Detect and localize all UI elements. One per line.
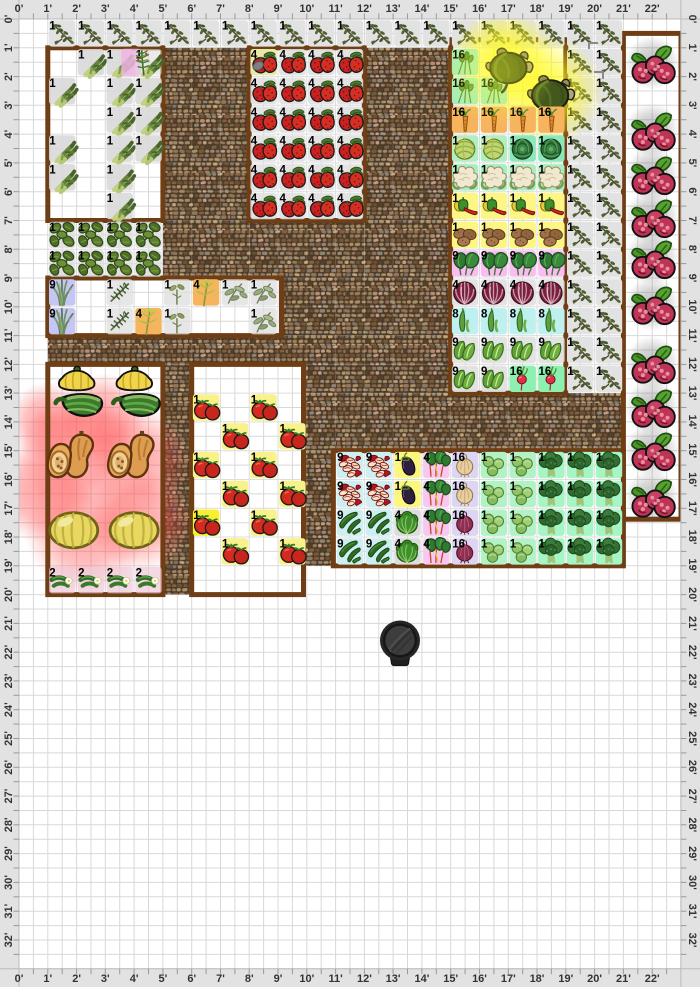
svg-text:4: 4: [337, 78, 344, 90]
svg-text:4: 4: [452, 280, 459, 292]
svg-text:22': 22': [686, 645, 698, 660]
svg-text:1: 1: [510, 222, 517, 234]
svg-text:1: 1: [567, 481, 574, 493]
svg-text:1: 1: [251, 308, 258, 320]
svg-text:1: 1: [452, 164, 459, 176]
svg-text:6': 6': [3, 187, 15, 196]
svg-text:1: 1: [107, 280, 114, 292]
svg-text:1: 1: [510, 539, 517, 551]
svg-text:4: 4: [280, 164, 287, 176]
svg-text:8: 8: [539, 308, 546, 320]
svg-text:1: 1: [337, 21, 344, 33]
svg-text:9: 9: [481, 337, 487, 349]
svg-text:1: 1: [251, 21, 258, 33]
svg-text:1: 1: [251, 280, 258, 292]
svg-text:21': 21': [3, 616, 15, 631]
svg-text:9: 9: [452, 251, 458, 263]
svg-text:17': 17': [501, 973, 516, 985]
svg-text:7': 7': [3, 216, 15, 225]
svg-text:1: 1: [193, 452, 200, 464]
svg-text:1: 1: [395, 452, 402, 464]
svg-text:1: 1: [481, 222, 488, 234]
svg-text:1: 1: [280, 423, 287, 435]
svg-text:18': 18': [530, 3, 545, 15]
svg-text:1: 1: [136, 222, 143, 234]
svg-text:9: 9: [366, 452, 372, 464]
svg-text:18': 18': [3, 529, 15, 544]
svg-text:1: 1: [596, 366, 603, 378]
svg-text:10': 10': [3, 299, 15, 314]
svg-text:4: 4: [308, 164, 315, 176]
svg-text:7': 7': [216, 3, 225, 15]
svg-text:9: 9: [337, 510, 343, 522]
svg-text:1: 1: [539, 193, 546, 205]
svg-text:12': 12': [3, 357, 15, 372]
svg-text:1: 1: [596, 164, 603, 176]
svg-text:1: 1: [395, 21, 402, 33]
svg-text:1: 1: [567, 452, 574, 464]
svg-text:1: 1: [481, 539, 488, 551]
svg-text:16': 16': [686, 472, 698, 487]
svg-text:2': 2': [686, 72, 698, 81]
svg-text:9: 9: [510, 337, 516, 349]
svg-text:9: 9: [337, 539, 343, 551]
svg-text:1: 1: [567, 539, 574, 551]
svg-text:28': 28': [3, 817, 15, 832]
svg-text:4: 4: [251, 136, 258, 148]
svg-text:4: 4: [280, 193, 287, 205]
svg-text:6': 6': [187, 973, 196, 985]
svg-text:23': 23': [686, 673, 698, 688]
svg-text:22': 22': [3, 644, 15, 659]
svg-text:9: 9: [510, 251, 516, 263]
svg-text:21': 21': [616, 973, 631, 985]
svg-text:1: 1: [481, 164, 488, 176]
svg-text:16: 16: [539, 107, 552, 119]
svg-text:4: 4: [395, 510, 402, 522]
svg-text:16: 16: [539, 366, 552, 378]
svg-text:1: 1: [539, 164, 546, 176]
svg-text:4: 4: [337, 193, 344, 205]
svg-text:1: 1: [567, 21, 574, 33]
svg-text:1: 1: [567, 308, 574, 320]
svg-text:5': 5': [159, 3, 168, 15]
svg-text:20': 20': [587, 3, 602, 15]
svg-text:14': 14': [414, 3, 429, 15]
svg-text:1: 1: [452, 222, 459, 234]
svg-text:1: 1: [107, 164, 114, 176]
svg-text:8': 8': [245, 973, 254, 985]
svg-text:1: 1: [596, 510, 603, 522]
svg-text:10': 10': [299, 973, 314, 985]
svg-text:4: 4: [539, 280, 546, 292]
svg-text:0': 0': [3, 14, 15, 23]
svg-text:1: 1: [366, 21, 373, 33]
svg-text:9: 9: [481, 366, 487, 378]
svg-text:1: 1: [481, 193, 488, 205]
svg-text:14': 14': [686, 414, 698, 429]
svg-text:3': 3': [101, 3, 110, 15]
svg-text:29': 29': [3, 846, 15, 861]
svg-text:1: 1: [107, 107, 114, 119]
svg-text:4: 4: [337, 107, 344, 119]
svg-text:9: 9: [539, 337, 545, 349]
svg-text:4: 4: [251, 193, 258, 205]
svg-text:4: 4: [423, 510, 430, 522]
svg-text:1': 1': [43, 3, 52, 15]
svg-text:16: 16: [452, 452, 465, 464]
svg-text:1: 1: [280, 481, 287, 493]
svg-text:1: 1: [481, 510, 488, 522]
svg-text:1: 1: [395, 481, 402, 493]
svg-text:1: 1: [136, 78, 143, 90]
svg-text:4: 4: [280, 49, 287, 61]
svg-text:27': 27': [686, 789, 698, 804]
svg-text:9': 9': [3, 273, 15, 282]
svg-text:16': 16': [472, 973, 487, 985]
svg-text:4: 4: [251, 78, 258, 90]
svg-text:1: 1: [510, 136, 517, 148]
svg-text:1: 1: [251, 395, 258, 407]
svg-text:0': 0': [15, 973, 24, 985]
svg-text:14': 14': [414, 973, 429, 985]
svg-text:15': 15': [443, 973, 458, 985]
svg-text:17': 17': [3, 500, 15, 515]
svg-text:1: 1: [136, 107, 143, 119]
svg-text:9: 9: [337, 452, 343, 464]
svg-text:4: 4: [308, 49, 315, 61]
svg-text:9: 9: [366, 510, 372, 522]
svg-text:1: 1: [452, 136, 459, 148]
svg-text:1: 1: [596, 337, 603, 349]
svg-text:11': 11': [328, 3, 343, 15]
svg-text:1: 1: [596, 193, 603, 205]
svg-text:1: 1: [193, 395, 200, 407]
svg-text:4: 4: [308, 136, 315, 148]
svg-text:29': 29': [686, 846, 698, 861]
svg-text:10': 10': [299, 3, 314, 15]
svg-text:13': 13': [686, 386, 698, 401]
svg-text:20': 20': [686, 587, 698, 602]
svg-text:32': 32': [686, 933, 698, 948]
svg-text:4: 4: [337, 136, 344, 148]
svg-text:1: 1: [567, 193, 574, 205]
svg-text:1: 1: [107, 193, 114, 205]
svg-text:4: 4: [308, 107, 315, 119]
svg-text:12': 12': [357, 973, 372, 985]
svg-text:12': 12': [686, 357, 698, 372]
svg-text:1: 1: [567, 222, 574, 234]
svg-text:23': 23': [3, 673, 15, 688]
svg-text:0': 0': [686, 15, 698, 24]
svg-text:1: 1: [251, 452, 258, 464]
svg-text:9: 9: [49, 308, 55, 320]
svg-text:1: 1: [136, 136, 143, 148]
svg-text:1: 1: [49, 164, 56, 176]
svg-text:1: 1: [222, 280, 229, 292]
svg-text:1: 1: [280, 21, 287, 33]
svg-text:19': 19': [558, 3, 573, 15]
svg-text:1: 1: [78, 21, 85, 33]
svg-text:8: 8: [510, 308, 517, 320]
svg-text:1: 1: [510, 164, 517, 176]
svg-text:16: 16: [452, 481, 465, 493]
svg-text:9: 9: [452, 337, 458, 349]
svg-text:1: 1: [193, 510, 200, 522]
svg-text:15': 15': [686, 443, 698, 458]
svg-text:16: 16: [452, 539, 465, 551]
svg-text:1: 1: [567, 280, 574, 292]
svg-text:1: 1: [596, 539, 603, 551]
svg-text:1: 1: [596, 280, 603, 292]
svg-text:1: 1: [510, 481, 517, 493]
svg-text:18': 18': [530, 973, 545, 985]
svg-text:8': 8': [3, 244, 15, 253]
svg-text:25': 25': [3, 731, 15, 746]
svg-text:2': 2': [72, 3, 81, 15]
svg-text:1: 1: [222, 21, 229, 33]
svg-text:25': 25': [686, 731, 698, 746]
svg-text:4': 4': [130, 973, 139, 985]
svg-text:11': 11': [686, 328, 698, 343]
svg-text:4': 4': [130, 3, 139, 15]
svg-text:2': 2': [3, 72, 15, 81]
svg-text:4': 4': [686, 130, 698, 139]
svg-text:1: 1: [539, 510, 546, 522]
svg-text:4: 4: [280, 78, 287, 90]
svg-text:1: 1: [596, 452, 603, 464]
svg-text:1: 1: [567, 251, 574, 263]
svg-text:4: 4: [251, 164, 258, 176]
svg-text:24': 24': [686, 702, 698, 717]
svg-text:9: 9: [366, 539, 372, 551]
svg-text:2: 2: [136, 567, 142, 579]
svg-text:8: 8: [452, 308, 459, 320]
svg-text:1: 1: [567, 337, 574, 349]
svg-text:1: 1: [510, 193, 517, 205]
svg-text:13': 13': [3, 385, 15, 400]
svg-text:1: 1: [107, 78, 114, 90]
svg-text:1: 1: [136, 21, 143, 33]
svg-text:1: 1: [251, 510, 258, 522]
svg-text:1: 1: [222, 423, 229, 435]
svg-text:1: 1: [49, 222, 56, 234]
svg-text:1: 1: [539, 452, 546, 464]
svg-text:26': 26': [3, 759, 15, 774]
svg-text:1: 1: [49, 21, 56, 33]
svg-text:30': 30': [3, 875, 15, 890]
svg-text:1: 1: [596, 49, 603, 61]
svg-text:6': 6': [187, 3, 196, 15]
svg-text:4: 4: [481, 280, 488, 292]
svg-text:24': 24': [3, 702, 15, 717]
svg-text:1: 1: [49, 78, 56, 90]
svg-text:20': 20': [3, 587, 15, 602]
svg-text:4: 4: [423, 481, 430, 493]
svg-text:15': 15': [3, 443, 15, 458]
svg-text:2: 2: [107, 567, 113, 579]
svg-text:1: 1: [78, 222, 85, 234]
svg-text:16: 16: [510, 366, 523, 378]
svg-text:1: 1: [222, 481, 229, 493]
svg-text:19': 19': [3, 558, 15, 573]
svg-text:1: 1: [49, 251, 56, 263]
svg-text:1: 1: [481, 136, 488, 148]
svg-text:1: 1: [452, 193, 459, 205]
svg-text:4: 4: [395, 539, 402, 551]
svg-text:13': 13': [386, 3, 401, 15]
svg-text:8': 8': [686, 245, 698, 254]
svg-text:2: 2: [49, 567, 55, 579]
svg-text:6': 6': [686, 187, 698, 196]
svg-text:27': 27': [3, 788, 15, 803]
svg-text:21': 21': [686, 616, 698, 631]
svg-text:0': 0': [15, 3, 24, 15]
svg-text:1: 1: [78, 251, 85, 263]
svg-text:13': 13': [386, 973, 401, 985]
svg-text:9: 9: [452, 366, 458, 378]
svg-text:1: 1: [452, 21, 459, 33]
svg-text:9: 9: [337, 481, 343, 493]
svg-text:19': 19': [558, 973, 573, 985]
svg-text:1: 1: [539, 222, 546, 234]
svg-text:17': 17': [686, 501, 698, 516]
svg-text:26': 26': [686, 760, 698, 775]
svg-text:1: 1: [136, 251, 143, 263]
svg-text:1: 1: [222, 539, 229, 551]
svg-text:1: 1: [567, 164, 574, 176]
svg-text:21': 21': [616, 3, 631, 15]
svg-text:4: 4: [337, 164, 344, 176]
svg-text:11': 11': [3, 328, 15, 343]
svg-text:4: 4: [337, 49, 344, 61]
svg-text:9': 9': [274, 973, 283, 985]
svg-text:4: 4: [510, 280, 517, 292]
svg-text:3': 3': [3, 101, 15, 110]
svg-text:1: 1: [510, 452, 517, 464]
svg-text:1: 1: [78, 49, 85, 61]
svg-text:4: 4: [280, 136, 287, 148]
svg-text:2': 2': [72, 973, 81, 985]
svg-text:1: 1: [539, 539, 546, 551]
svg-text:1: 1: [107, 251, 114, 263]
svg-text:1: 1: [596, 136, 603, 148]
svg-text:31': 31': [686, 904, 698, 919]
svg-text:16': 16': [472, 3, 487, 15]
svg-text:1: 1: [539, 481, 546, 493]
svg-text:1: 1: [164, 308, 171, 320]
svg-text:9: 9: [366, 481, 372, 493]
svg-text:1': 1': [686, 43, 698, 52]
svg-text:4: 4: [308, 78, 315, 90]
svg-text:4: 4: [136, 308, 143, 320]
svg-text:9': 9': [274, 3, 283, 15]
svg-text:7': 7': [686, 216, 698, 225]
svg-text:1: 1: [193, 21, 200, 33]
svg-text:4: 4: [423, 539, 430, 551]
svg-text:11': 11': [328, 973, 343, 985]
svg-text:16: 16: [452, 510, 465, 522]
svg-text:9: 9: [49, 280, 55, 292]
svg-text:1': 1': [43, 973, 52, 985]
svg-text:4: 4: [308, 193, 315, 205]
svg-text:10': 10': [686, 299, 698, 314]
svg-text:9: 9: [539, 251, 545, 263]
svg-text:1: 1: [423, 21, 430, 33]
svg-text:1: 1: [481, 452, 488, 464]
svg-text:7': 7': [216, 973, 225, 985]
svg-text:1: 1: [107, 222, 114, 234]
svg-text:15': 15': [443, 3, 458, 15]
svg-text:32': 32': [3, 932, 15, 947]
svg-text:12': 12': [357, 3, 372, 15]
svg-text:1: 1: [510, 510, 517, 522]
svg-text:4: 4: [251, 49, 258, 61]
svg-text:1: 1: [107, 308, 114, 320]
svg-text:1: 1: [164, 280, 171, 292]
svg-text:14': 14': [3, 414, 15, 429]
svg-text:22': 22': [645, 3, 660, 15]
svg-text:1: 1: [539, 136, 546, 148]
svg-text:1: 1: [107, 21, 114, 33]
svg-text:1': 1': [3, 43, 15, 52]
svg-text:4: 4: [280, 107, 287, 119]
svg-text:1: 1: [107, 136, 114, 148]
svg-text:16': 16': [3, 472, 15, 487]
svg-text:8: 8: [481, 308, 488, 320]
svg-text:31': 31': [3, 903, 15, 918]
svg-text:2: 2: [78, 567, 84, 579]
svg-text:20': 20': [587, 973, 602, 985]
svg-text:5': 5': [159, 973, 168, 985]
svg-text:1: 1: [596, 481, 603, 493]
svg-text:1: 1: [567, 510, 574, 522]
svg-text:1: 1: [596, 251, 603, 263]
svg-text:1: 1: [481, 481, 488, 493]
svg-text:18': 18': [686, 530, 698, 545]
svg-text:9: 9: [481, 251, 487, 263]
svg-text:1: 1: [596, 222, 603, 234]
svg-text:1: 1: [596, 308, 603, 320]
svg-text:30': 30': [686, 875, 698, 890]
svg-text:1: 1: [280, 539, 287, 551]
svg-text:1: 1: [308, 21, 315, 33]
svg-text:4: 4: [423, 452, 430, 464]
svg-text:17': 17': [501, 3, 516, 15]
svg-text:9': 9': [686, 274, 698, 283]
svg-text:1: 1: [107, 49, 114, 61]
svg-text:1: 1: [164, 21, 171, 33]
svg-text:1: 1: [49, 136, 56, 148]
svg-text:3': 3': [101, 973, 110, 985]
svg-text:22': 22': [645, 973, 660, 985]
svg-text:4': 4': [3, 129, 15, 138]
svg-text:1: 1: [596, 21, 603, 33]
svg-text:4: 4: [193, 280, 200, 292]
svg-text:8': 8': [245, 3, 254, 15]
svg-text:28': 28': [686, 817, 698, 832]
svg-text:5': 5': [686, 159, 698, 168]
svg-text:19': 19': [686, 558, 698, 573]
svg-text:4: 4: [251, 107, 258, 119]
svg-text:1: 1: [567, 366, 574, 378]
svg-text:3': 3': [686, 101, 698, 110]
svg-text:5': 5': [3, 158, 15, 167]
